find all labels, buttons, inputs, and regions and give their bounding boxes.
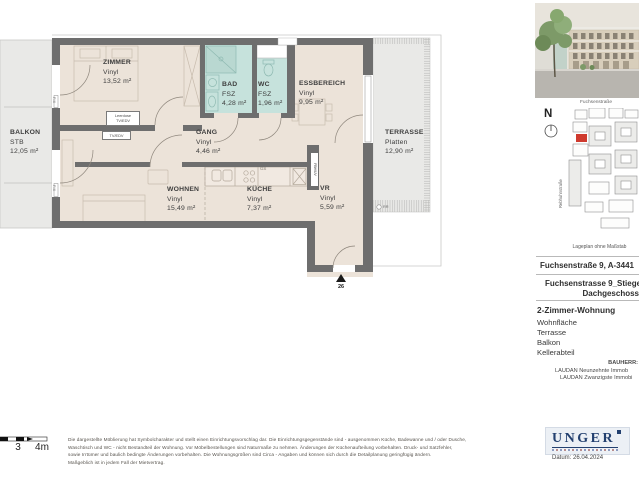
room-label-essbereich: ESSBEREICH Vinyl 9,95 m²	[299, 79, 345, 108]
feature-terrasse: Terrasse	[537, 328, 566, 337]
address: Fuchsenstraße 9, A-3441	[540, 261, 634, 270]
bauherr-line-1: LAUDAN Neunzehnte Immob	[555, 368, 628, 374]
kitchen-counter	[205, 167, 312, 186]
room-label-vr: VR Vinyl 5,59 m²	[320, 184, 344, 213]
unit-line-1: Fuchsenstrasse 9_Stiege	[545, 279, 639, 288]
apartment-type: 2-Zimmer-Wohnung	[537, 305, 615, 315]
unit-line-2: Dachgeschoss	[572, 289, 639, 298]
room-label-balkon: BALKON STB 12,05 m²	[10, 128, 40, 157]
logo-square-mark	[617, 430, 621, 434]
logo-rule	[552, 447, 618, 448]
north-label: N	[544, 108, 552, 120]
disclaimer-line-4: Maßgeblich ist in jedem Fall der Mietver…	[68, 459, 165, 466]
disclaimer-line-1: Die dargestellte Möblierung hat Symbolch…	[68, 436, 466, 443]
divider	[536, 274, 639, 275]
room-label-bad: BAD FSZ 4,28 m²	[222, 80, 246, 109]
fbh-uv-label: FBH/UV	[311, 153, 318, 186]
disclaimer-line-3: sowie Irrtümer und baulich bedingte Ände…	[68, 451, 431, 458]
feature-balkon: Balkon	[537, 338, 560, 347]
rainpipe-symbol	[377, 205, 381, 209]
fix-window-label-1: FIX	[52, 97, 56, 104]
divider	[536, 300, 639, 301]
logo-subtext-strip	[552, 449, 618, 451]
unit-location-marker	[576, 134, 587, 142]
room-label-terrasse: TERRASSE Platten 12,90 m²	[385, 128, 424, 157]
room-label-kueche: KÜCHE Vinyl 7,37 m²	[247, 185, 272, 214]
bauherr-line-2: LAUDAN Zwanzigste Immobi	[560, 375, 632, 381]
map-street-left-label: Rebhuhnstraße	[558, 179, 563, 208]
building-rendering	[535, 3, 639, 98]
company-logo: UNGER	[545, 427, 630, 455]
logo-text: UNGER	[552, 431, 615, 447]
feature-kellerabteil: Kellerabteil	[537, 348, 575, 357]
fix-window-label-2: FIX	[52, 185, 56, 192]
map-street-top-label: Fuchsenstraße	[580, 100, 612, 105]
shaft	[257, 45, 287, 58]
map-caption: Lageplan ohne Maßstab	[560, 244, 639, 250]
feature-wohnflaeche: Wohnfläche	[537, 318, 577, 327]
bauherr-label: BAUHERR:	[580, 360, 638, 366]
room-label-zimmer: ZIMMER Vinyl 13,52 m²	[103, 58, 131, 87]
compass-icon	[543, 123, 559, 139]
room-label-gang: GANG Vinyl 4,46 m²	[196, 128, 220, 157]
socket-label: Leerdose TV/EDV	[106, 111, 140, 126]
terrace-area	[373, 38, 430, 212]
unit-number: 26	[334, 284, 348, 290]
disclaimer-line-2: Waschtisch und WC - nicht Bestandteil de…	[68, 444, 453, 451]
scale-label-3: 3	[12, 442, 24, 453]
room-label-wc: WC FSZ 1,96 m²	[258, 80, 282, 109]
rr-label: RR	[383, 204, 389, 209]
room-label-wohnen: WOHNEN Vinyl 15,49 m²	[167, 185, 199, 214]
tv-edv-label: TV/EDV	[102, 131, 131, 140]
floorplan-sheet: ZIMMER Vinyl 13,52 m² BAD FSZ 4,28 m² WC…	[0, 0, 639, 480]
divider	[536, 256, 639, 257]
date-label: Datum: 26.04.2024	[552, 455, 603, 461]
scale-label-4m: 4m	[32, 442, 52, 453]
dishwasher-label: GS	[260, 166, 266, 171]
site-plan-map	[565, 108, 639, 240]
